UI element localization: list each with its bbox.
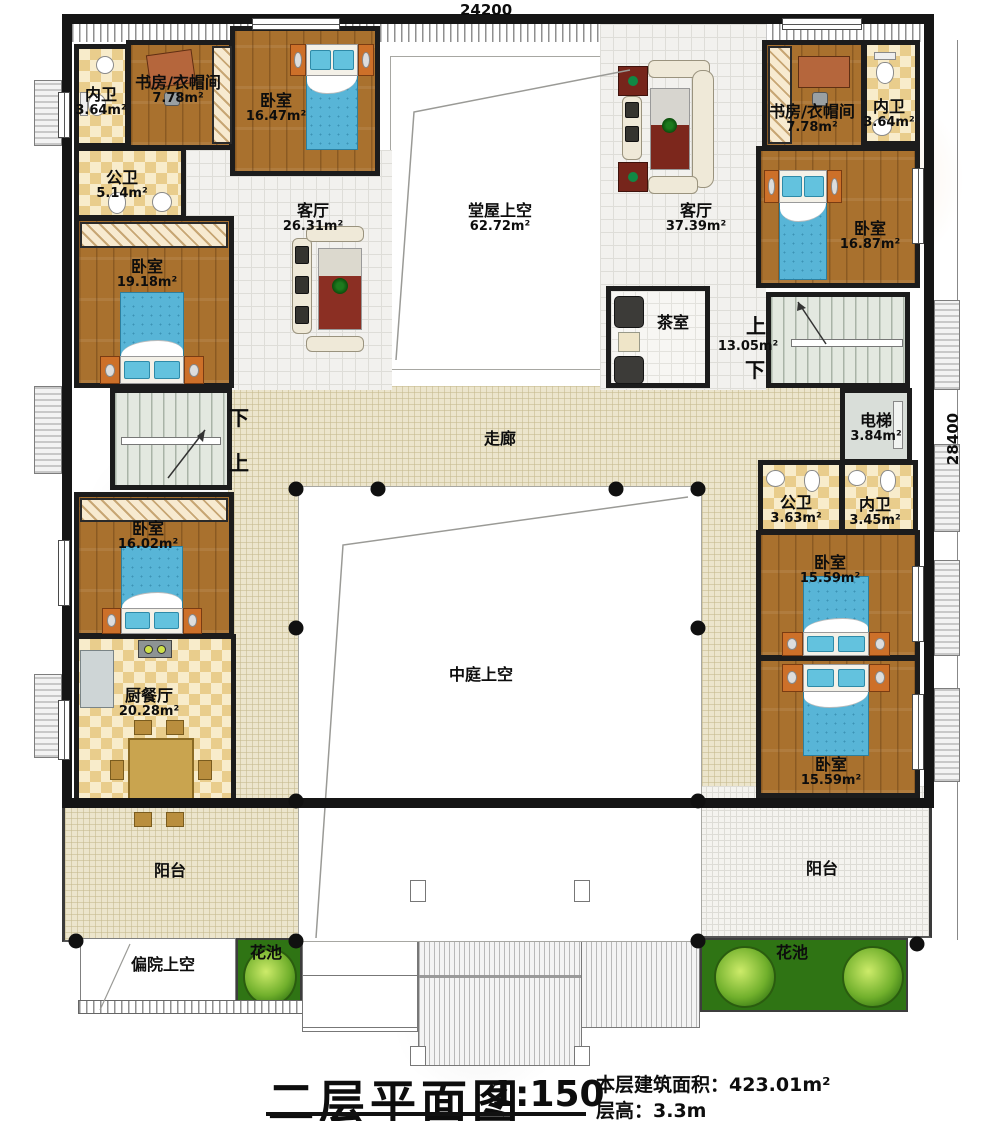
stair-rail <box>791 339 903 347</box>
pillow <box>807 669 834 687</box>
room-label: 厨餐厅20.28m² <box>119 687 179 719</box>
nightstand <box>782 664 803 692</box>
stairs-right <box>766 292 910 388</box>
side-yard-label: 偏院上空 <box>131 956 195 974</box>
nightstand <box>290 44 306 76</box>
pillow <box>807 636 834 652</box>
stove <box>138 640 172 658</box>
pillow <box>310 50 331 70</box>
column <box>691 794 706 809</box>
drawing-scale: 1:150 <box>490 1074 605 1115</box>
dining-chair <box>198 760 212 780</box>
dimension-top: 24200 <box>460 1 512 19</box>
floor-area-info: 本层建筑面积：423.01m² <box>596 1070 830 1097</box>
nightstand <box>184 356 204 384</box>
room-label: 客厅26.31m² <box>283 202 343 234</box>
headboard <box>803 664 870 692</box>
room-label: 书房/衣帽间7.78m² <box>769 103 855 135</box>
sheet-fold <box>122 592 182 608</box>
pillow <box>333 50 354 70</box>
wardrobe <box>80 222 228 248</box>
bed <box>100 292 204 384</box>
window <box>252 18 340 30</box>
atrium-label: 中庭上空 <box>449 666 513 684</box>
balcony-label: 阳台 <box>806 860 838 878</box>
headboard <box>779 170 827 203</box>
room-label: 客厅37.39m² <box>666 202 726 234</box>
pillow <box>154 612 179 629</box>
desk <box>798 56 850 88</box>
step-line <box>303 975 417 976</box>
dimension-right: 28400 <box>944 394 962 484</box>
tree <box>842 946 904 1008</box>
floor-height-info: 层高：3.3m <box>596 1096 706 1121</box>
stair-down-label: 下 <box>229 402 249 431</box>
step-post <box>574 880 590 902</box>
sofa-cushion <box>625 126 639 142</box>
headboard <box>120 356 185 384</box>
tea-chair <box>614 296 644 328</box>
title-underline <box>266 1112 586 1116</box>
column <box>289 482 304 497</box>
room-label: 书房/衣帽间7.78m² <box>135 74 221 106</box>
pillow <box>782 176 802 197</box>
sheet-fold <box>804 692 869 708</box>
floor-plan: 24200 28400 <box>0 0 1000 1121</box>
column <box>910 937 925 952</box>
room-label: 内卫3.45m² <box>849 496 900 528</box>
room-label: 电梯3.84m² <box>850 412 901 444</box>
side-table <box>618 162 648 192</box>
sofa-cushion <box>295 276 309 294</box>
sofa-cushion <box>625 102 639 118</box>
window <box>58 540 70 606</box>
column <box>371 482 386 497</box>
sink <box>152 192 172 212</box>
step-post <box>410 880 426 902</box>
nightstand <box>100 356 120 384</box>
headboard <box>803 632 870 656</box>
pillow <box>838 636 865 652</box>
window <box>912 168 924 244</box>
column <box>289 794 304 809</box>
step-line <box>303 1027 417 1028</box>
room-label: 公卫5.14m² <box>96 169 147 201</box>
nightstand <box>102 608 121 634</box>
column <box>691 934 706 949</box>
nightstand <box>869 632 890 656</box>
stair-down-label: 下 <box>745 354 765 383</box>
nightstand <box>764 170 779 203</box>
room-label: 内卫3.64m² <box>75 86 126 118</box>
sofa <box>306 336 364 352</box>
window <box>912 566 924 642</box>
stair-up-label: 上 <box>229 447 249 476</box>
toilet-tank <box>874 52 896 60</box>
room-label: 卧室15.59m² <box>800 554 860 586</box>
room-label: 茶室 <box>657 314 689 332</box>
pillow <box>154 361 180 379</box>
exterior-ledge <box>34 386 62 474</box>
corridor-label: 走廊 <box>484 430 516 448</box>
sink <box>766 470 785 487</box>
plant <box>332 278 348 294</box>
sheet-fold <box>804 618 869 632</box>
pillow <box>125 612 150 629</box>
bed <box>102 546 202 634</box>
window <box>58 700 70 760</box>
nightstand <box>827 170 842 203</box>
nightstand <box>869 664 890 692</box>
window <box>912 694 924 770</box>
step-post <box>410 1046 426 1066</box>
kitchen-counter <box>80 650 114 708</box>
room-label: 内卫3.64m² <box>863 98 914 130</box>
sofa-cushion <box>295 306 309 324</box>
room-label: 卧室16.02m² <box>118 520 178 552</box>
window <box>782 18 862 30</box>
exterior-ledge <box>934 300 960 390</box>
room-label: 卧室16.87m² <box>840 220 900 252</box>
sheet-fold <box>121 340 183 356</box>
toilet <box>804 470 820 492</box>
column <box>691 482 706 497</box>
room-label: 公卫3.63m² <box>770 494 821 526</box>
mattress <box>779 203 827 280</box>
sheet-fold <box>307 76 357 95</box>
dining-chair <box>134 720 152 735</box>
step-post <box>574 1046 590 1066</box>
toilet <box>876 62 894 84</box>
step-rail <box>419 975 581 978</box>
pillow <box>124 361 150 379</box>
pillow <box>804 176 824 197</box>
nightstand <box>782 632 803 656</box>
headboard <box>306 44 358 76</box>
column <box>691 621 706 636</box>
bed <box>782 664 890 756</box>
stair-rail <box>121 437 221 445</box>
room-label: 卧室16.47m² <box>246 92 306 124</box>
pillow <box>838 669 865 687</box>
sink <box>848 470 866 486</box>
room-label: 卧室15.59m² <box>801 756 861 788</box>
balcony-label: 阳台 <box>154 862 186 880</box>
bed <box>764 170 842 280</box>
mattress <box>803 692 870 756</box>
mattress <box>306 76 358 150</box>
dining-chair <box>110 760 124 780</box>
nightstand <box>183 608 202 634</box>
bed <box>782 576 890 656</box>
sheet-fold <box>780 203 826 222</box>
stairs-left <box>110 388 232 490</box>
dining-chair <box>166 720 184 735</box>
tea-chair <box>614 356 644 384</box>
exterior-ledge <box>934 688 960 782</box>
stair-up-label: 上 <box>746 310 766 339</box>
flower-bed-label: 花池 <box>250 944 282 962</box>
dining-chair <box>166 812 184 827</box>
plant <box>662 118 677 133</box>
corridor-elevator-hall <box>762 386 844 466</box>
side-table <box>618 66 648 96</box>
railing-hatch <box>78 1000 304 1014</box>
headboard <box>121 608 183 634</box>
toilet <box>880 470 896 492</box>
dining-table <box>128 738 194 808</box>
column <box>289 934 304 949</box>
sofa <box>692 70 714 188</box>
sink <box>96 56 114 74</box>
stair-area-label: 13.05m² <box>718 340 778 355</box>
nightstand <box>358 44 374 76</box>
sofa-cushion <box>295 246 309 264</box>
tea-table <box>618 332 640 352</box>
room-label: 卧室19.18m² <box>117 258 177 290</box>
mattress <box>121 546 183 608</box>
tree <box>714 946 776 1008</box>
window <box>58 92 70 138</box>
bed-head <box>290 44 374 76</box>
flower-bed-label: 花池 <box>776 944 808 962</box>
sofa <box>648 176 698 194</box>
mattress <box>120 292 184 356</box>
exterior-ledge <box>934 560 960 656</box>
column <box>289 621 304 636</box>
dining-chair <box>134 812 152 827</box>
atrium-void <box>298 486 702 942</box>
column <box>69 934 84 949</box>
room-label: 堂屋上空62.72m² <box>468 202 532 234</box>
column <box>609 482 624 497</box>
